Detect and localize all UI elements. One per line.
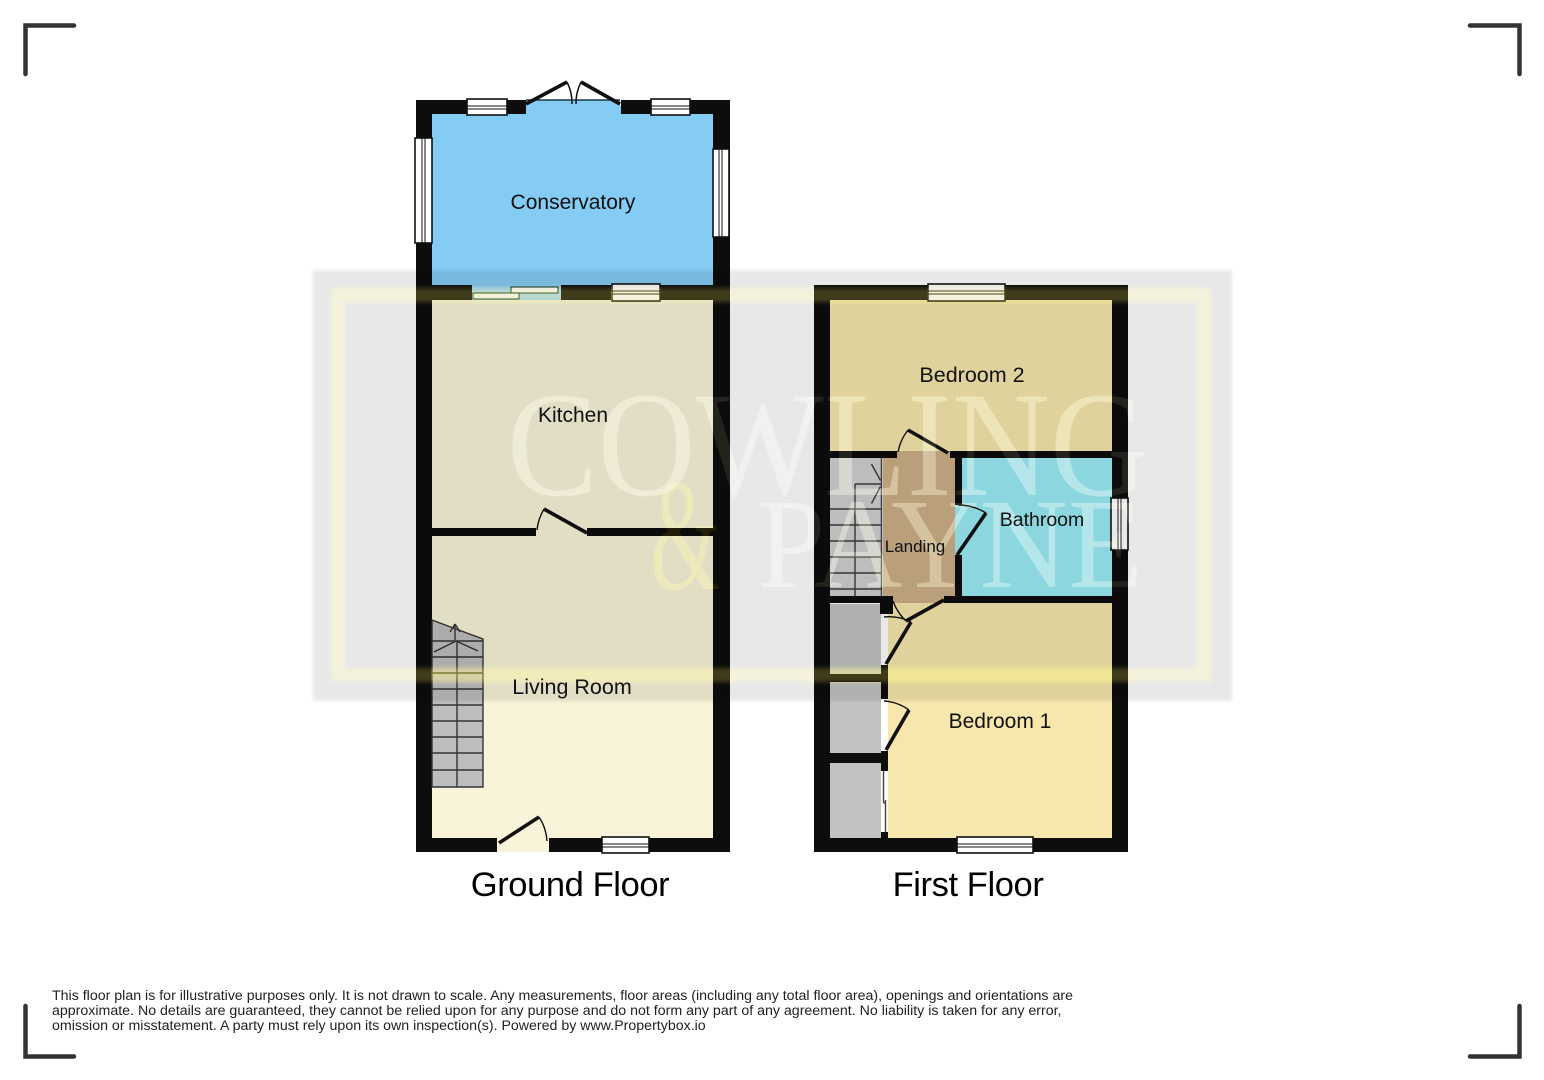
svg-text:Bedroom 1: Bedroom 1 <box>949 710 1052 733</box>
svg-text:Landing: Landing <box>885 537 946 556</box>
svg-text:Ground Floor: Ground Floor <box>471 866 669 904</box>
svg-text:&: & <box>650 446 720 624</box>
svg-text:Bedroom 2: Bedroom 2 <box>919 363 1024 387</box>
svg-text:First Floor: First Floor <box>893 866 1044 904</box>
svg-text:Bathroom: Bathroom <box>1000 509 1085 531</box>
svg-text:Living Room: Living Room <box>512 675 632 699</box>
svg-text:Conservatory: Conservatory <box>511 191 636 214</box>
svg-text:Kitchen: Kitchen <box>538 404 608 427</box>
svg-text:PAYNE: PAYNE <box>757 473 1143 615</box>
